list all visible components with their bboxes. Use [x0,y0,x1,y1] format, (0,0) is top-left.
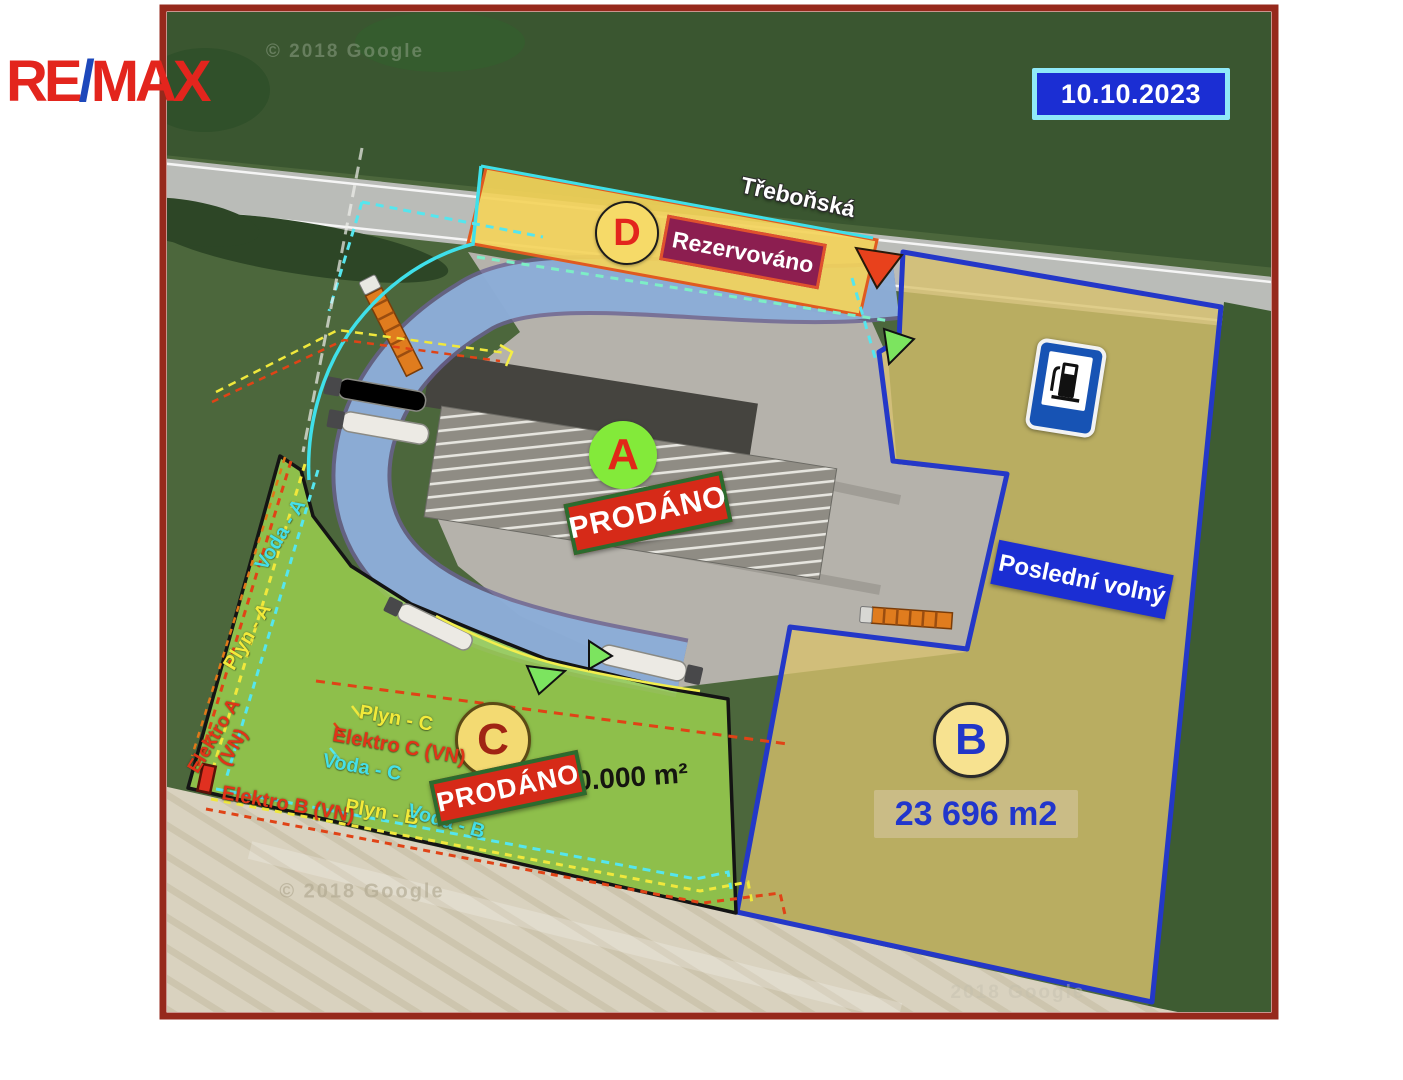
logo-max: MAX [91,49,208,114]
watermark: © 2018 Google [279,881,444,904]
plot-map-page: RE/MAX 10.10.2023 Třeboňská © 2018 Googl… [0,0,1403,1080]
satellite-map [0,0,1403,1080]
zone-b-marker: B [933,702,1009,778]
logo-re: RE [6,49,79,114]
logo-slash-icon: / [79,49,91,114]
ev-charging-sign-icon [1024,337,1108,439]
zone-a-marker: A [589,421,657,489]
zone-b-area-label: 23 696 m2 [874,790,1078,838]
remax-logo: RE/MAX [6,48,208,115]
fuel-pump-icon [1041,351,1093,411]
date-badge: 10.10.2023 [1032,68,1230,120]
watermark: © 2018 Google [266,41,424,63]
watermark: 2018 Google [951,982,1086,1004]
zone-d-marker: D [595,201,659,265]
